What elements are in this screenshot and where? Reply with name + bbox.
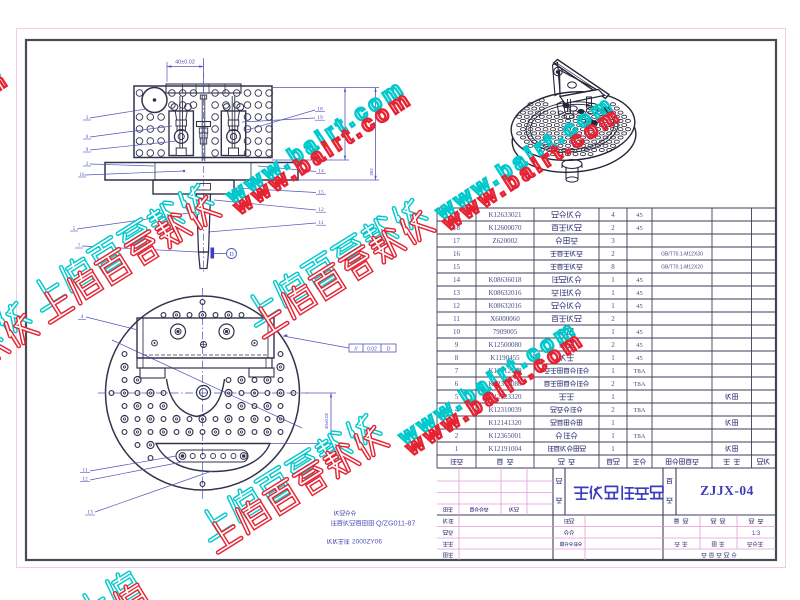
svg-text:T8A: T8A	[634, 407, 646, 414]
svg-text:8: 8	[611, 263, 615, 271]
svg-text:K12365001: K12365001	[488, 432, 522, 440]
svg-text:12: 12	[453, 302, 461, 310]
svg-text:45: 45	[636, 342, 643, 349]
svg-text:7: 7	[455, 367, 459, 375]
svg-text:1: 1	[611, 289, 615, 297]
svg-text:17: 17	[453, 237, 461, 245]
svg-text:T8A: T8A	[634, 368, 646, 375]
svg-text:1: 1	[611, 445, 615, 453]
svg-text:K08636018: K08636018	[488, 276, 522, 284]
svg-text:Q/ZG011-87: Q/ZG011-87	[376, 519, 415, 528]
svg-text://: //	[354, 347, 358, 353]
svg-text:3: 3	[611, 237, 615, 245]
svg-text:45: 45	[636, 303, 643, 310]
svg-text:45: 45	[636, 355, 643, 362]
svg-text:45: 45	[636, 290, 643, 297]
svg-text:K08632016: K08632016	[488, 302, 522, 310]
svg-text:1: 1	[611, 393, 615, 401]
svg-text:K08632016: K08632016	[488, 289, 522, 297]
svg-text:2: 2	[611, 341, 615, 349]
svg-text:2: 2	[611, 406, 615, 414]
svg-text:1:3: 1:3	[752, 531, 761, 537]
svg-text:1: 1	[611, 302, 615, 310]
svg-text:K12141320: K12141320	[488, 419, 522, 427]
svg-text:13: 13	[453, 289, 461, 297]
svg-text:16: 16	[453, 250, 461, 258]
svg-text:45: 45	[636, 329, 643, 336]
svg-text:T8A: T8A	[634, 381, 646, 388]
svg-text:1: 1	[611, 328, 615, 336]
svg-text:D: D	[229, 252, 234, 258]
svg-text:1: 1	[611, 276, 615, 284]
svg-text:1: 1	[611, 432, 615, 440]
svg-text:GB/T70.1-M12X20: GB/T70.1-M12X20	[661, 265, 703, 271]
svg-text:2: 2	[611, 380, 615, 388]
svg-text:15: 15	[453, 263, 461, 271]
svg-text:7909005: 7909005	[493, 328, 518, 336]
svg-text:13: 13	[87, 510, 93, 516]
svg-text:2: 2	[611, 250, 615, 258]
svg-text:1: 1	[611, 354, 615, 362]
svg-text:K12633021: K12633021	[488, 211, 522, 219]
svg-text:4: 4	[81, 314, 84, 320]
svg-text:2000ZY06: 2000ZY06	[352, 539, 382, 546]
svg-text:302: 302	[369, 168, 374, 176]
svg-text:0.02: 0.02	[367, 347, 377, 353]
svg-text:1: 1	[611, 367, 615, 375]
svg-text:ZJJX-04: ZJJX-04	[700, 483, 754, 498]
svg-text:45: 45	[636, 225, 643, 232]
svg-text:2: 2	[611, 315, 615, 323]
svg-text:D: D	[387, 347, 391, 353]
svg-text:40±0.02: 40±0.02	[175, 60, 195, 66]
svg-text:1: 1	[611, 419, 615, 427]
svg-text:2: 2	[611, 224, 615, 232]
svg-text:K12191004: K12191004	[488, 445, 522, 453]
svg-text:45: 45	[636, 277, 643, 284]
svg-text:9: 9	[455, 341, 459, 349]
svg-text:8: 8	[455, 354, 459, 362]
svg-text:14: 14	[453, 276, 461, 284]
svg-text:K12600070: K12600070	[488, 224, 522, 232]
svg-text:GB/T70.1-M12X30: GB/T70.1-M12X30	[661, 252, 703, 258]
svg-text:10: 10	[453, 328, 461, 336]
svg-text:Z620002: Z620002	[492, 237, 518, 245]
svg-text:11: 11	[453, 315, 460, 323]
svg-text:4: 4	[611, 211, 615, 219]
svg-text:1: 1	[455, 445, 459, 453]
svg-text:T8A: T8A	[634, 433, 646, 440]
svg-text:45: 45	[636, 212, 643, 219]
svg-text:X6000060: X6000060	[490, 315, 520, 323]
svg-text:40±0.02: 40±0.02	[324, 412, 329, 429]
